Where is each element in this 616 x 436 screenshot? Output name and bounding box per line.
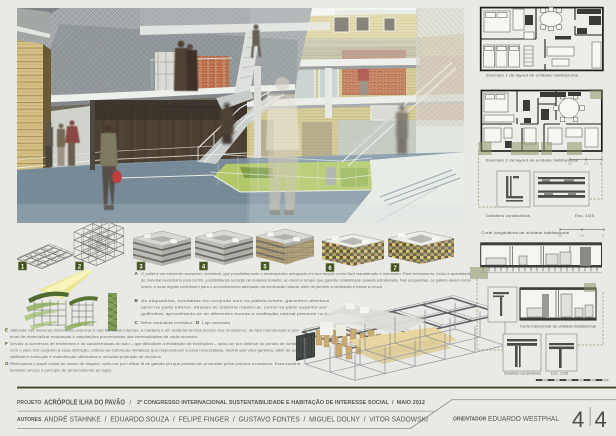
svg-text:de material necessário para ta: de material necessário para tal fim, pos… — [141, 278, 472, 283]
svg-text:Utilizada nas menores dimensõe: Utilizada nas menores dimensões externas… — [10, 328, 301, 333]
svg-text:0.5: 0.5 — [568, 162, 572, 166]
svg-text:ORIENTADOR: ORIENTADOR — [453, 417, 487, 423]
svg-text:sível de materializar mudanças: sível de materializar mudanças e ampliaç… — [10, 334, 198, 339]
svg-text:Detalhes construtivos: Detalhes construtivos — [486, 214, 530, 218]
svg-text:1.5: 1.5 — [580, 234, 584, 238]
svg-text:Corte longitudinal de unidade: Corte longitudinal de unidade habitacion… — [481, 231, 569, 235]
svg-text:O pallet é um elemento acessív: O pallet é um elemento acessível, recicl… — [141, 271, 472, 276]
svg-text:4: 4 — [595, 407, 607, 432]
svg-text:1.5: 1.5 — [584, 162, 588, 166]
svg-text:Telha ondulada metálica: Telha ondulada metálica — [140, 320, 193, 325]
svg-text:brises, e suas réguas contribu: brises, e suas réguas contribuem para o … — [141, 284, 383, 289]
svg-text:também reforça o princípio de: também reforça o princípio de pertencime… — [10, 368, 112, 373]
svg-text:com o solo. Em conjunto a essa: com o solo. Em conjunto a essa definição… — [10, 348, 301, 353]
svg-text:Corte transversal de unidade h: Corte transversal de unidade habitaciona… — [520, 325, 596, 329]
svg-text:guilhotina, aproveitando-se de: guilhotina, aproveitando-se de diferente… — [141, 311, 337, 316]
svg-text:Esc. 1/25: Esc. 1/25 — [575, 214, 594, 218]
svg-text:4: 4 — [572, 407, 584, 432]
svg-text:0.5: 0.5 — [558, 234, 562, 238]
svg-text:Exemplo 1 de layout de unidade: Exemplo 1 de layout de unidade habitacio… — [486, 74, 578, 78]
svg-text:G: G — [5, 361, 9, 366]
svg-text:Esc. 1/25: Esc. 1/25 — [551, 372, 568, 376]
svg-text:PROJETO: PROJETO — [17, 400, 42, 406]
svg-text:EDUARDO WESTPHAL: EDUARDO WESTPHAL — [488, 416, 559, 423]
svg-text:ACRÓPOLE ILHA DO PAVÃO: ACRÓPOLE ILHA DO PAVÃO — [44, 398, 125, 407]
svg-text:Exemplo 2 de layout de unidade: Exemplo 2 de layout de unidade habitacio… — [486, 159, 578, 163]
svg-text:Laje anexada: Laje anexada — [202, 320, 231, 325]
svg-text:F: F — [5, 341, 8, 346]
svg-text:Devido à ocorrência de enchent: Devido à ocorrência de enchentes e às ca… — [10, 341, 301, 346]
svg-text:As esquadrias, montadas em con: As esquadrias, montadas em conjunto com … — [141, 298, 330, 303]
svg-text:tanto na parte inferior, atrav: tanto na parte inferior, através do sist… — [141, 305, 328, 310]
svg-text:sibilitarem execução e manuten: sibilitarem execução e manutenção otimiz… — [10, 354, 162, 359]
svg-text:2º CONGRESSO INTERNACIONAL SUS: 2º CONGRESSO INTERNACIONAL SUSTENTABILID… — [137, 399, 425, 406]
svg-text:Detalhes construtivos: Detalhes construtivos — [504, 372, 541, 376]
svg-text:E: E — [5, 328, 8, 333]
svg-text:Reforçando o papel social do c: Reforçando o papel social do centro de t… — [10, 361, 301, 366]
svg-text:ANDRÉ STAHNKE / EDUARDO SOUZ: ANDRÉ STAHNKE / EDUARDO SOUZA / FELIPE F… — [44, 415, 428, 424]
svg-text:AUTORES: AUTORES — [17, 417, 42, 423]
